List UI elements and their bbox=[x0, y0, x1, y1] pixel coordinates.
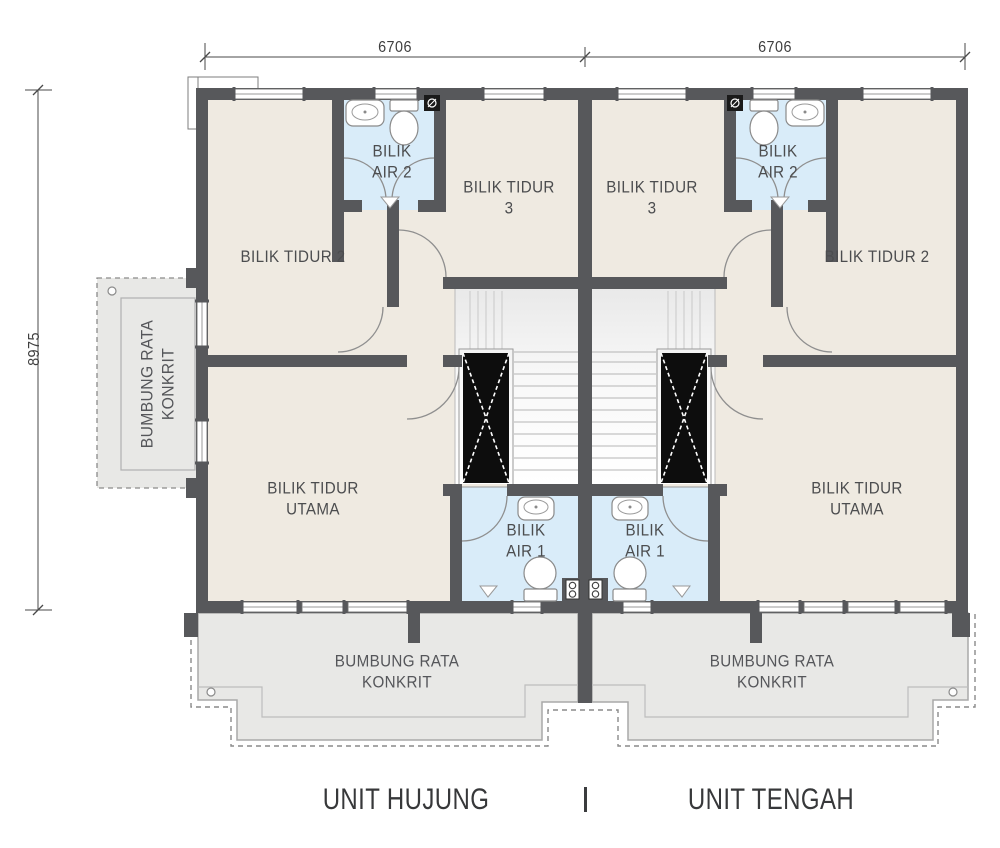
toilet-icon-bath1-left bbox=[524, 557, 557, 601]
toilet-icon-bath2-right bbox=[750, 100, 778, 145]
roof-label-side: BUMBUNG RATA KONKRIT bbox=[138, 320, 179, 449]
unit-label-right: UNIT TENGAH bbox=[688, 783, 854, 817]
toilet-icon-bath1-right bbox=[613, 557, 646, 601]
unit-label-separator bbox=[584, 787, 587, 812]
room-label-bath1-right: BILIK AIR 1 bbox=[625, 521, 665, 562]
roof-label-left: BUMBUNG RATA KONKRIT bbox=[335, 652, 459, 693]
sink-icon-bath2-left bbox=[346, 100, 384, 126]
dimension-width-right: 6706 bbox=[758, 39, 792, 57]
stair-void-left bbox=[459, 349, 513, 487]
stair-void-right bbox=[657, 349, 711, 487]
roof-drain-left bbox=[207, 688, 215, 696]
dimension-width-left: 6706 bbox=[378, 39, 412, 57]
sink-icon-bath1-left bbox=[518, 497, 554, 520]
dimension-height-left: 8975 bbox=[26, 332, 44, 366]
unit-label-left: UNIT HUJUNG bbox=[323, 783, 490, 817]
room-label-bath1-left: BILIK AIR 1 bbox=[506, 521, 546, 562]
sink-icon-bath1-right bbox=[612, 497, 648, 520]
room-label-bath2-left: BILIK AIR 2 bbox=[372, 142, 412, 183]
room-label-bedroom2-left: BILIK TIDUR 2 bbox=[241, 247, 346, 268]
room-label-bedroom3-left: BILIK TIDUR 3 bbox=[463, 178, 554, 219]
room-label-bath2-right: BILIK AIR 2 bbox=[758, 142, 798, 183]
room-label-master-right: BILIK TIDUR UTAMA bbox=[811, 479, 902, 520]
floor-plan-canvas: 6706 6706 8975 BILIK TIDUR 2 BILIK TIDUR… bbox=[0, 0, 1000, 848]
pipe-duct-icons bbox=[562, 578, 608, 601]
sink-icon-bath2-right bbox=[786, 100, 824, 126]
room-label-bedroom2-right: BILIK TIDUR 2 bbox=[825, 247, 930, 268]
room-label-master-left: BILIK TIDUR UTAMA bbox=[267, 479, 358, 520]
roof-drain-side bbox=[108, 287, 116, 295]
roof-label-right: BUMBUNG RATA KONKRIT bbox=[710, 652, 834, 693]
vent-icon-bath2-left bbox=[424, 95, 440, 111]
vent-icon-bath2-right bbox=[727, 95, 743, 111]
room-label-bedroom3-right: BILIK TIDUR 3 bbox=[606, 178, 697, 219]
toilet-icon-bath2-left bbox=[390, 100, 418, 145]
roof-drain-right bbox=[949, 688, 957, 696]
